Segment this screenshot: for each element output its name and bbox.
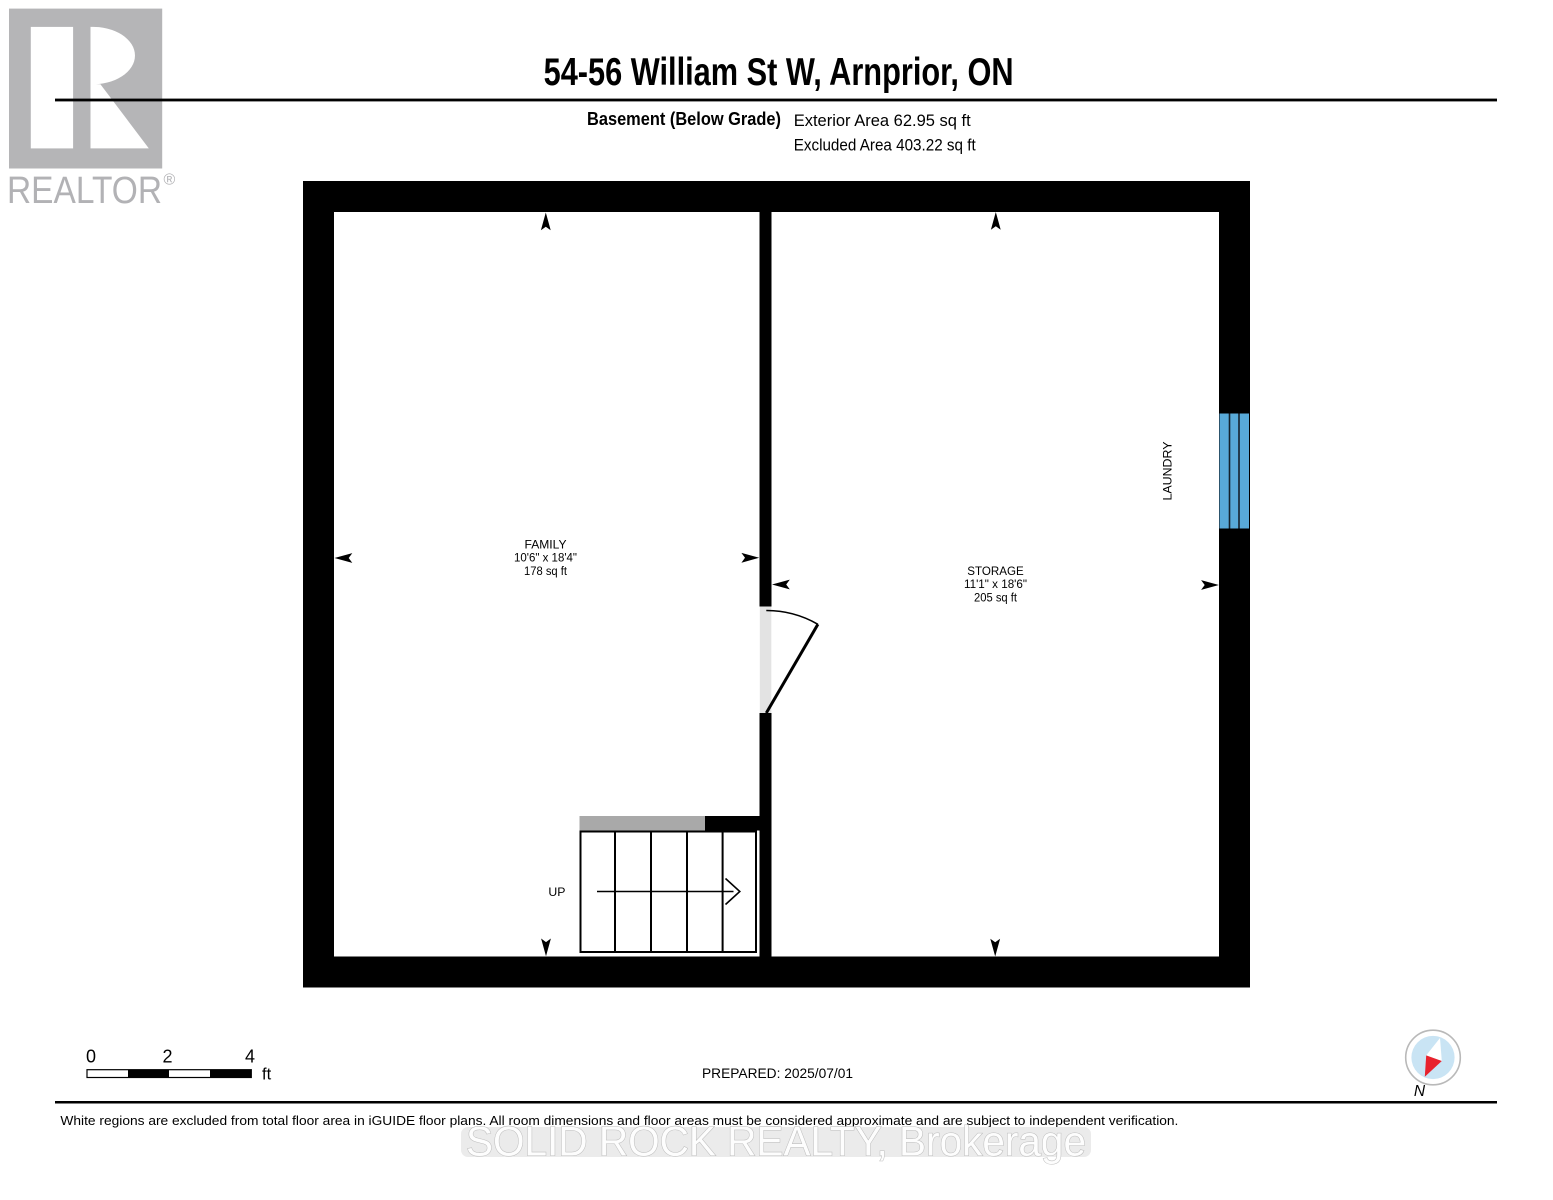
svg-text:0: 0 [86, 1047, 96, 1067]
svg-text:REALTOR: REALTOR [7, 170, 162, 212]
svg-text:SOLID ROCK REALTY, Brokerage: SOLID ROCK REALTY, Brokerage [466, 1118, 1086, 1165]
svg-text:Excluded Area 403.22 sq ft: Excluded Area 403.22 sq ft [794, 136, 976, 154]
svg-text:FAMILY: FAMILY [525, 538, 567, 552]
svg-text:178 sq ft: 178 sq ft [524, 564, 568, 578]
svg-text:®: ® [164, 172, 176, 189]
svg-text:11'1" x 18'6": 11'1" x 18'6" [964, 577, 1027, 591]
svg-text:2: 2 [162, 1047, 172, 1067]
svg-text:PREPARED: 2025/07/01: PREPARED: 2025/07/01 [702, 1065, 853, 1081]
svg-text:N: N [1414, 1083, 1426, 1100]
svg-text:ft: ft [262, 1066, 272, 1084]
svg-text:54-56 William St W, Arnprior,: 54-56 William St W, Arnprior, ON [544, 51, 1014, 94]
svg-text:LAUNDRY: LAUNDRY [1161, 442, 1175, 501]
svg-text:UP: UP [548, 885, 565, 899]
svg-text:205 sq ft: 205 sq ft [974, 590, 1018, 604]
svg-text:Exterior Area 62.95 sq ft: Exterior Area 62.95 sq ft [794, 112, 971, 130]
svg-text:10'6" x 18'4": 10'6" x 18'4" [514, 551, 577, 565]
svg-text:4: 4 [245, 1047, 255, 1067]
svg-text:Basement (Below Grade): Basement (Below Grade) [587, 109, 781, 129]
